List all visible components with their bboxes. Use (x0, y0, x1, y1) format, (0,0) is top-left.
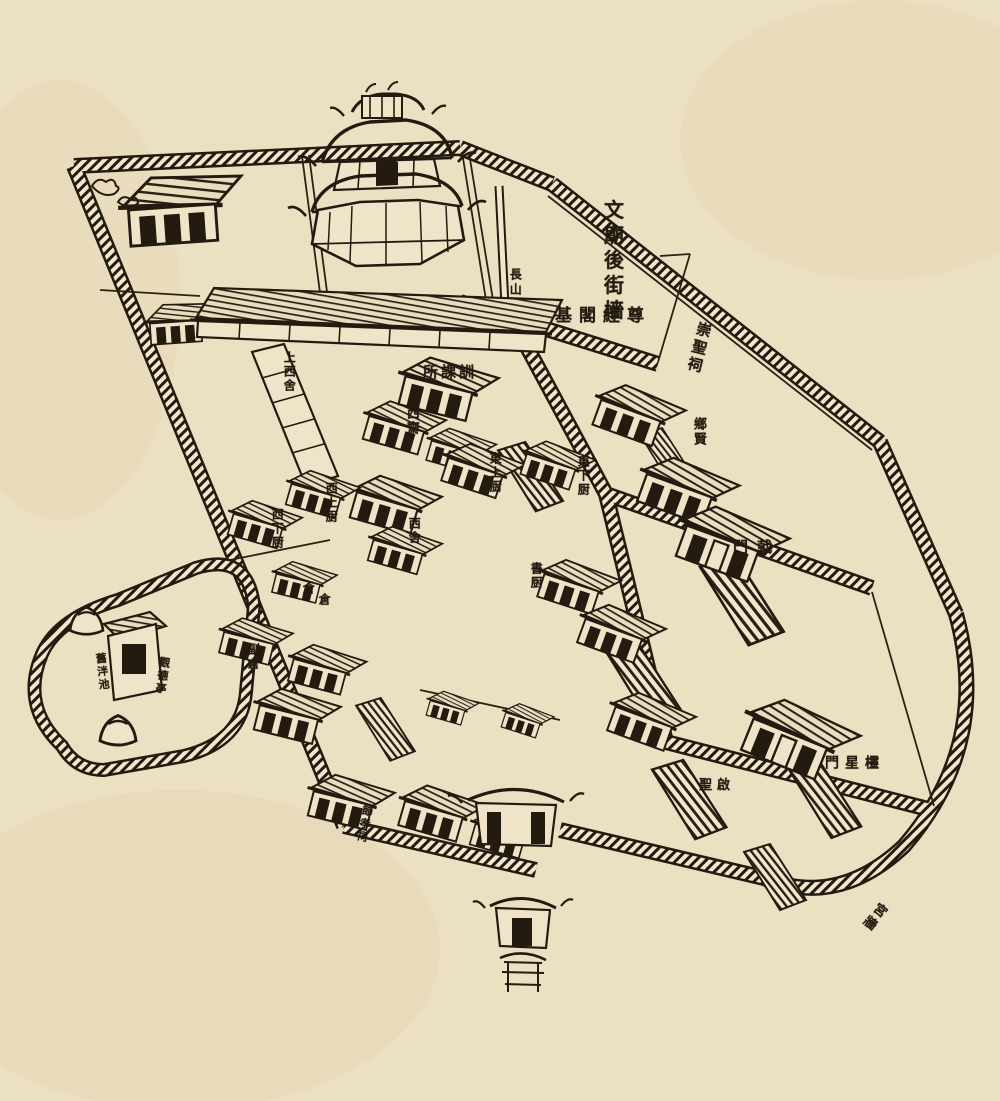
woodcut-map-page: 文廟後街墻長山基閣經尊崇聖祠所課訓上西舍西齋鄉賢東上厨東下厨西上厨西下厨西舍門戟… (0, 0, 1000, 1101)
enclave-hall (104, 612, 166, 700)
woodcut-map-drawing (0, 0, 1000, 1101)
